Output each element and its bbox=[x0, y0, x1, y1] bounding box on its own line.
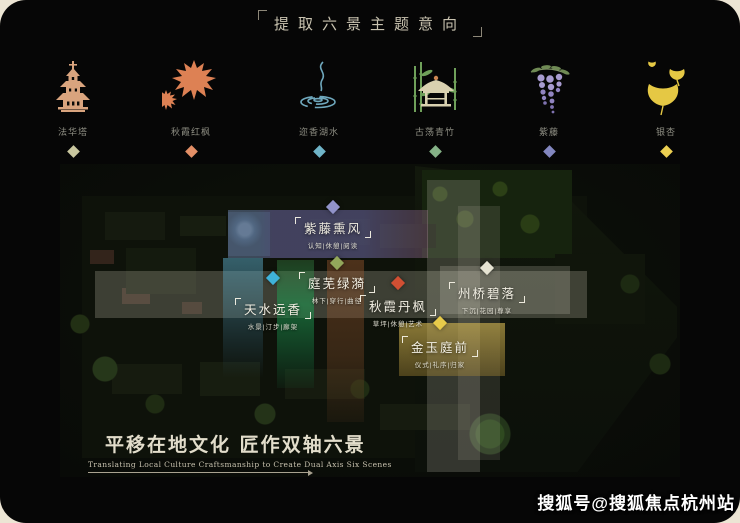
zone-jinyutingqian: 金玉庭前 仪式|礼序|归家 bbox=[370, 318, 510, 369]
page-title: 提取六景主题意向 bbox=[254, 6, 486, 41]
dark-panel: 提取六景主题意向 bbox=[0, 0, 740, 523]
caption-en: Translating Local Culture Craftsmanship … bbox=[88, 460, 392, 469]
theme-diamond bbox=[185, 145, 198, 158]
zone-title: 紫藤熏风 bbox=[295, 216, 371, 239]
theme-label: 古荡青竹 bbox=[389, 125, 481, 138]
zone-zhouqiaobiluo: 州桥碧落 下沉|花园|尊享 bbox=[417, 263, 557, 315]
theme-diamond bbox=[660, 145, 673, 158]
theme-item-ginkgo: 银杏 bbox=[620, 56, 712, 156]
theme-diamond bbox=[429, 145, 442, 158]
caption-zh: 平移在地文化 匠作双轴六景 bbox=[105, 430, 392, 457]
theme-item-pavilion: 古荡青竹 bbox=[389, 56, 481, 156]
arrow-right-icon bbox=[308, 470, 313, 476]
theme-item-maple: 秋霞红枫 bbox=[145, 56, 237, 156]
watermark: 搜狐号@搜狐焦点杭州站 bbox=[537, 489, 735, 514]
zone-diamond bbox=[330, 256, 344, 270]
theme-icons-row: 法华塔 秋霞红枫 bbox=[0, 56, 740, 168]
theme-diamond bbox=[543, 145, 556, 158]
zone-tags: 认知|休憩|阅读 bbox=[263, 240, 403, 250]
theme-diamond bbox=[313, 145, 326, 158]
wisteria-icon bbox=[503, 56, 595, 118]
bottom-caption: 平移在地文化 匠作双轴六景 Translating Local Culture … bbox=[88, 430, 392, 473]
zone-title: 金玉庭前 bbox=[402, 335, 478, 358]
zone-diamond bbox=[391, 276, 405, 290]
zone-tags: 水景|汀步|廊架 bbox=[203, 321, 343, 331]
theme-diamond bbox=[67, 145, 80, 158]
theme-label: 秋霞红枫 bbox=[145, 125, 237, 138]
theme-label: 法华塔 bbox=[27, 125, 119, 138]
theme-item-pagoda: 法华塔 bbox=[27, 56, 119, 156]
header: 提取六景主题意向 bbox=[0, 6, 740, 41]
zone-tags: 下沉|花园|尊享 bbox=[417, 305, 557, 315]
theme-item-water: 迩香湖水 bbox=[273, 56, 365, 156]
zone-diamond bbox=[480, 261, 494, 275]
theme-label: 紫藤 bbox=[503, 125, 595, 138]
zone-zitengxunfeng: 紫藤熏风 认知|休憩|阅读 bbox=[263, 202, 403, 250]
infographic-page: 提取六景主题意向 bbox=[0, 0, 740, 523]
pagoda-icon bbox=[27, 56, 119, 118]
theme-item-wisteria: 紫藤 bbox=[503, 56, 595, 156]
ginkgo-icon bbox=[620, 56, 712, 118]
zone-tags: 仪式|礼序|归家 bbox=[370, 359, 510, 369]
pavilion-bamboo-icon bbox=[389, 56, 481, 118]
zone-title: 州桥碧落 bbox=[449, 281, 525, 304]
maple-icon bbox=[145, 56, 237, 118]
theme-label: 银杏 bbox=[620, 125, 712, 138]
ripple-icon bbox=[273, 56, 365, 118]
caption-underline bbox=[88, 472, 308, 473]
zone-diamond bbox=[326, 200, 340, 214]
zone-diamond bbox=[433, 316, 447, 330]
theme-label: 迩香湖水 bbox=[273, 125, 365, 138]
